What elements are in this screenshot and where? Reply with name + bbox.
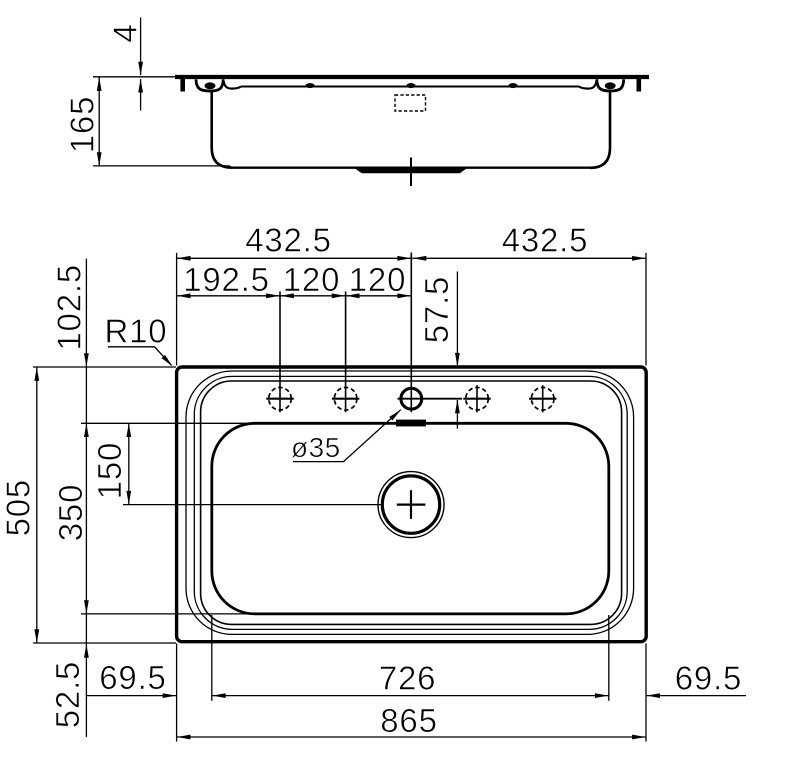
svg-text:52.5: 52.5 xyxy=(49,661,86,728)
svg-text:ø35: ø35 xyxy=(291,432,341,463)
svg-text:350: 350 xyxy=(52,484,89,541)
svg-text:4: 4 xyxy=(107,23,144,42)
svg-text:505: 505 xyxy=(0,479,36,536)
svg-text:865: 865 xyxy=(380,702,437,739)
svg-text:150: 150 xyxy=(91,442,128,499)
svg-text:432.5: 432.5 xyxy=(502,222,589,259)
svg-text:120: 120 xyxy=(283,261,340,298)
svg-text:192.5: 192.5 xyxy=(183,261,270,298)
svg-text:R10: R10 xyxy=(105,313,168,350)
svg-text:69.5: 69.5 xyxy=(99,659,166,696)
svg-text:69.5: 69.5 xyxy=(675,660,742,697)
svg-text:165: 165 xyxy=(64,96,101,153)
svg-text:57.5: 57.5 xyxy=(418,276,455,343)
svg-text:432.5: 432.5 xyxy=(245,222,332,259)
svg-text:726: 726 xyxy=(379,660,436,697)
svg-text:102.5: 102.5 xyxy=(51,264,88,351)
svg-text:120: 120 xyxy=(349,261,406,298)
